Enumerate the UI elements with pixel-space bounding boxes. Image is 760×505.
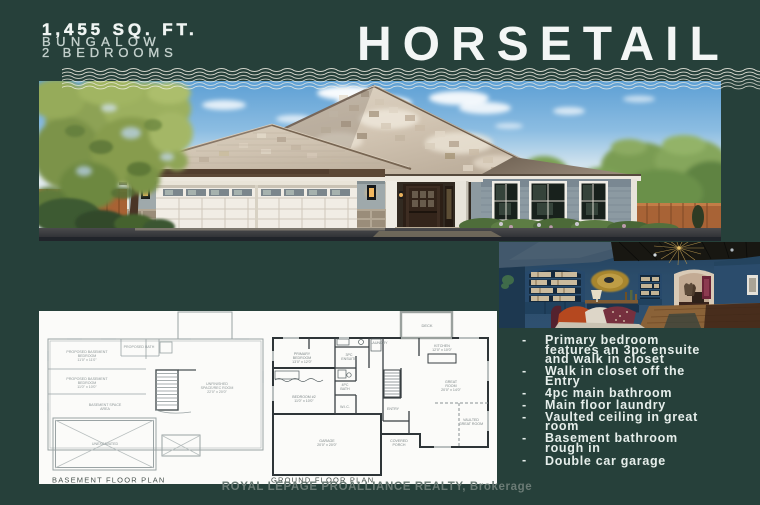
svg-text:11'0" x 11'0": 11'0" x 11'0" <box>77 358 97 362</box>
svg-text:W.I.C.: W.I.C. <box>340 405 350 409</box>
svg-text:BATH: BATH <box>340 387 350 391</box>
svg-text:AREA: AREA <box>100 407 110 411</box>
svg-text:11'0" x 10'0": 11'0" x 10'0" <box>294 399 314 403</box>
svg-text:20'0" x 20'0": 20'0" x 20'0" <box>317 443 337 447</box>
svg-text:13'0" x 12'0": 13'0" x 12'0" <box>292 360 312 364</box>
svg-text:UNEXCAVATED: UNEXCAVATED <box>92 442 119 446</box>
svg-text:12'0" x 10'0": 12'0" x 10'0" <box>432 348 452 352</box>
svg-text:20'0" x 14'0": 20'0" x 14'0" <box>441 388 461 392</box>
svg-text:11'0" x 10'0": 11'0" x 10'0" <box>77 385 97 389</box>
svg-text:LAUNDRY: LAUNDRY <box>370 341 388 345</box>
svg-text:22'0" x 20'0": 22'0" x 20'0" <box>207 390 227 394</box>
svg-text:GREAT ROOM: GREAT ROOM <box>459 422 483 426</box>
svg-text:PROPOSED BATH: PROPOSED BATH <box>124 345 155 349</box>
svg-text:ENTRY: ENTRY <box>387 407 400 411</box>
svg-text:DECK: DECK <box>421 323 432 328</box>
svg-text:ENSUITE: ENSUITE <box>341 357 357 361</box>
svg-text:PORCH: PORCH <box>393 443 406 447</box>
